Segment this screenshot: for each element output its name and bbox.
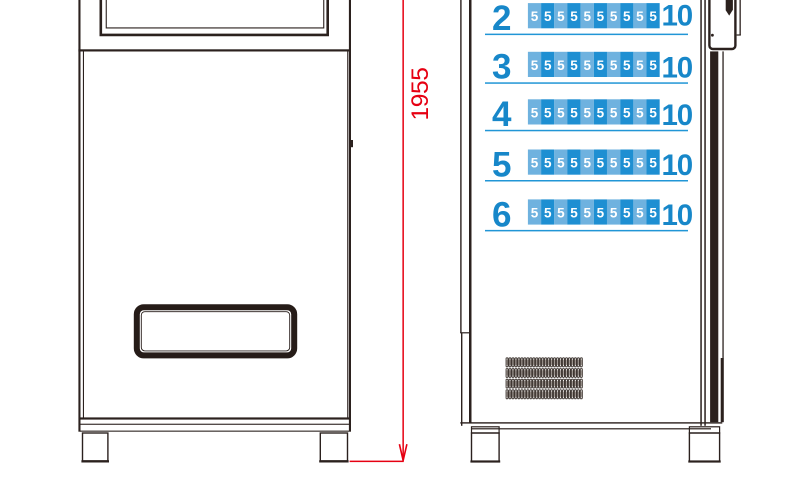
svg-text:5: 5	[544, 58, 552, 73]
svg-text:5: 5	[570, 58, 578, 73]
svg-text:5: 5	[610, 9, 618, 24]
svg-text:3: 3	[492, 48, 511, 87]
svg-text:10: 10	[662, 0, 693, 33]
svg-text:4: 4	[492, 95, 512, 134]
svg-text:5: 5	[544, 205, 552, 220]
svg-text:5: 5	[557, 156, 565, 171]
svg-text:5: 5	[583, 156, 591, 171]
svg-text:5: 5	[610, 156, 618, 171]
svg-text:5: 5	[610, 205, 618, 220]
svg-text:5: 5	[636, 156, 644, 171]
svg-text:5: 5	[636, 9, 644, 24]
svg-text:5: 5	[623, 105, 631, 120]
svg-text:5: 5	[623, 156, 631, 171]
svg-text:5: 5	[531, 9, 539, 24]
svg-text:5: 5	[570, 9, 578, 24]
svg-text:5: 5	[583, 105, 591, 120]
svg-text:10: 10	[662, 51, 693, 84]
svg-text:5: 5	[570, 156, 578, 171]
svg-text:5: 5	[570, 205, 578, 220]
svg-text:5: 5	[636, 105, 644, 120]
svg-text:5: 5	[610, 58, 618, 73]
svg-text:5: 5	[531, 105, 539, 120]
svg-text:5: 5	[557, 105, 565, 120]
svg-text:5: 5	[531, 205, 539, 220]
svg-text:5: 5	[557, 58, 565, 73]
svg-text:1955: 1955	[407, 68, 434, 121]
svg-text:5: 5	[636, 58, 644, 73]
svg-text:5: 5	[649, 58, 657, 73]
svg-text:5: 5	[649, 9, 657, 24]
svg-text:5: 5	[583, 58, 591, 73]
svg-text:5: 5	[531, 156, 539, 171]
svg-text:10: 10	[662, 199, 693, 232]
svg-text:5: 5	[636, 205, 644, 220]
svg-text:5: 5	[597, 156, 605, 171]
svg-text:5: 5	[531, 58, 539, 73]
svg-text:5: 5	[492, 145, 511, 184]
svg-text:5: 5	[623, 58, 631, 73]
svg-text:5: 5	[597, 205, 605, 220]
svg-text:2: 2	[492, 0, 511, 38]
svg-text:6: 6	[492, 195, 511, 234]
svg-text:5: 5	[544, 9, 552, 24]
svg-text:5: 5	[649, 205, 657, 220]
svg-text:5: 5	[557, 9, 565, 24]
svg-text:5: 5	[544, 156, 552, 171]
svg-text:5: 5	[597, 105, 605, 120]
svg-text:5: 5	[583, 9, 591, 24]
svg-text:5: 5	[583, 205, 591, 220]
svg-text:5: 5	[649, 156, 657, 171]
svg-text:5: 5	[570, 105, 578, 120]
svg-text:5: 5	[623, 205, 631, 220]
svg-text:5: 5	[597, 9, 605, 24]
svg-text:5: 5	[610, 105, 618, 120]
svg-text:5: 5	[597, 58, 605, 73]
svg-text:5: 5	[649, 105, 657, 120]
svg-text:10: 10	[662, 149, 693, 182]
svg-text:5: 5	[623, 9, 631, 24]
svg-text:10: 10	[662, 99, 693, 132]
svg-text:5: 5	[557, 205, 565, 220]
svg-text:5: 5	[544, 105, 552, 120]
